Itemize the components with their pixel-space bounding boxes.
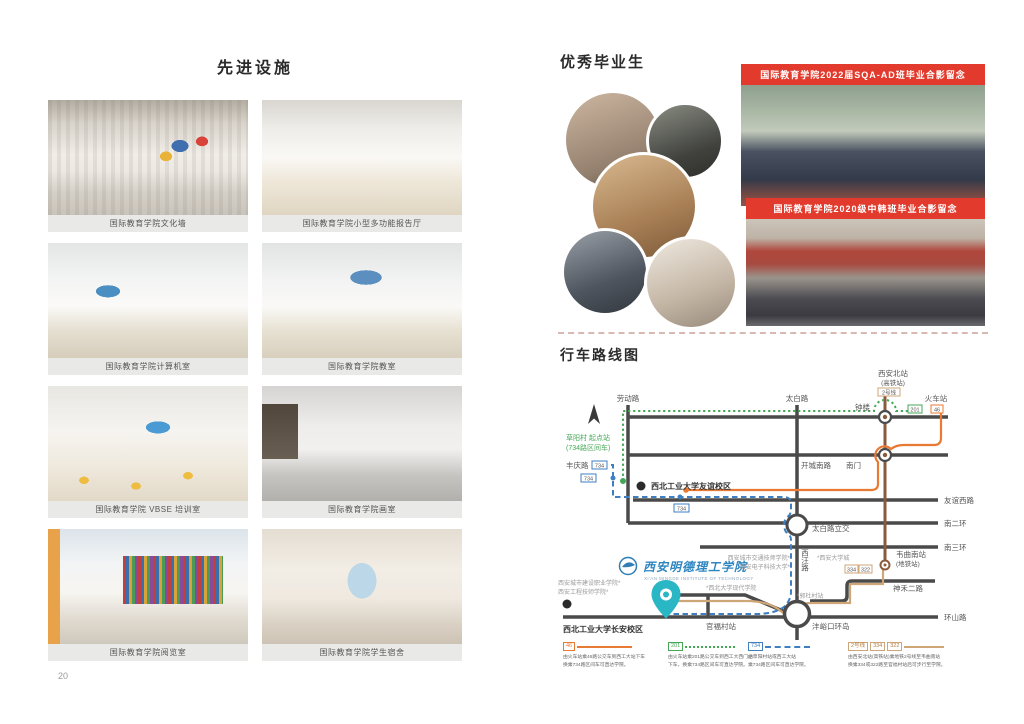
legend-text: 下车，换乘734路区间车可直达学院。: [668, 662, 746, 670]
facility-photo-dormitory: [262, 529, 462, 644]
label-npu-changan-campus: 西北工业大学长安校区: [563, 624, 643, 634]
label-nearby-college-4: 西安城市交通技师学院*: [728, 554, 791, 562]
label-xian-north-sub: (高铁站): [881, 378, 905, 387]
svg-text:734: 734: [677, 507, 686, 513]
facility-card: 国际教育学院教室: [262, 243, 462, 375]
road-network: [563, 405, 948, 640]
label-bell-tower: 钟楼: [855, 402, 870, 412]
facility-photo-classroom: [262, 243, 462, 358]
label-nearby-college-1: 西安城市建设职业学院*: [558, 579, 621, 587]
facility-photo-culture-wall: [48, 100, 248, 215]
svg-text:334: 334: [847, 568, 856, 574]
label-xiwang-road: 西汪路: [800, 549, 809, 572]
label-south-2nd-ring: 南二环: [944, 518, 967, 528]
svg-text:2号线: 2号线: [882, 389, 897, 397]
label-youyi-west-road: 友谊西路: [944, 495, 974, 505]
bus-734-stop-dot-1: [611, 476, 616, 481]
label-nearby-area: *西安大学城: [817, 554, 849, 562]
bus-201-endpoint: [620, 478, 626, 484]
label-weiqu-south-sub: (地铁站): [896, 559, 920, 568]
facility-caption: 国际教育学院小型多功能报告厅: [262, 215, 462, 232]
svg-text:XI'AN MINGDE INSTITUTE OF TECH: XI'AN MINGDE INSTITUTE OF TECHNOLOGY: [644, 576, 754, 581]
facility-caption: 国际教育学院计算机室: [48, 358, 248, 375]
npu-youyi-campus-dot: [637, 482, 646, 491]
facility-caption: 国际教育学院学生宿舍: [262, 644, 462, 661]
label-caoyang-sub: (734路区间车): [566, 443, 610, 452]
legend-text: 换乘734路区间车可直达学院。: [563, 662, 663, 670]
label-caoyang-start: 草阳村 起点站: [566, 433, 610, 442]
legend-text: 由火车站乘46路公交车到西工大站下车: [563, 654, 663, 662]
legend-text: 由草阳村站或西工大站: [748, 654, 833, 662]
legend-text: 由火车站乘201路公交车到西工大西门站: [668, 654, 746, 662]
legend-metro-bus: 2号线 334 322 由西安北站(高铁站)乘地铁2号线至韦曲南站 换乘334或…: [848, 642, 988, 669]
label-xian-north-station: 西安北站: [878, 368, 908, 378]
label-kaicheng-road: 开城南路: [801, 460, 831, 470]
label-nearby-college-3: *西北大学现代学院: [706, 584, 756, 592]
facility-card: 国际教育学院计算机室: [48, 243, 248, 375]
route-map-title: 行车路线图: [560, 345, 640, 365]
graduation-banner-2020: 国际教育学院2020级中韩班毕业合影留念: [746, 198, 985, 219]
page-number: 20: [58, 671, 68, 681]
legend-badge-322: 322: [887, 642, 902, 651]
route-map: 2号线 201 46 734 734 734 334 322: [550, 368, 990, 640]
bus-734-stop-dot-2: [678, 495, 683, 500]
legend-badge-46: 46: [563, 642, 575, 651]
legend-badge-201: 201: [668, 642, 683, 651]
facility-caption: 国际教育学院阅览室: [48, 644, 248, 661]
facility-caption: 国际教育学院教室: [262, 358, 462, 375]
facility-caption: 国际教育学院文化墙: [48, 215, 248, 232]
facility-photo-reading-room: [48, 529, 248, 644]
facility-photo-computer-room: [48, 243, 248, 358]
graduate-portrait-5: [644, 236, 738, 330]
label-south-gate: 南门: [846, 460, 861, 470]
group-photo-2022: [741, 85, 985, 206]
facility-card: 国际教育学院文化墙: [48, 100, 248, 232]
label-south-3rd-ring: 南三环: [944, 542, 967, 552]
facility-card: 国际教育学院 VBSE 培训室: [48, 386, 248, 518]
label-laodong-road: 劳动路: [617, 393, 640, 403]
legend-text: 换乘334或322路至官福村站后可步行至学院。: [848, 662, 988, 670]
legend-line-blue: [765, 646, 810, 648]
facility-caption: 国际教育学院画室: [262, 501, 462, 518]
label-huanshan-road: 环山路: [944, 612, 967, 622]
svg-text:734: 734: [595, 464, 604, 470]
label-train-station: 火车站: [925, 393, 948, 403]
label-shenhe-2nd-road: 神禾二路: [893, 583, 923, 593]
facility-photo-grid: 国际教育学院文化墙 国际教育学院小型多功能报告厅 国际教育学院计算机室 国际教育…: [48, 100, 462, 661]
label-npu-youyi-campus: 西北工业大学友谊校区: [651, 481, 731, 491]
graduate-portrait-4: [561, 228, 649, 316]
legend-bus-46: 46 由火车站乘46路公交车到西工大站下车 换乘734路区间车可直达学院。: [563, 642, 663, 669]
label-nearby-stop: *郭杜村站: [797, 592, 823, 600]
bus-46-route: [688, 412, 941, 490]
npu-changan-campus-dot: [563, 600, 572, 609]
label-taibai-interchange: 太白路立交: [812, 523, 850, 533]
facility-card: 国际教育学院画室: [262, 386, 462, 518]
legend-line-tan: [904, 646, 944, 648]
label-fengyukou-roundabout: 沣峪口环岛: [812, 621, 850, 631]
facility-photo-art-studio: [262, 386, 462, 501]
legend-text: 由西安北站(高铁站)乘地铁2号线至韦曲南站: [848, 654, 988, 662]
facility-card: 国际教育学院学生宿舍: [262, 529, 462, 661]
legend-bus-201: 201 由火车站乘201路公交车到西工大西门站 下车，换乘734路区间车可直达学…: [668, 642, 746, 669]
legend-text: 乘734路区间车可直达学院。: [748, 662, 833, 670]
label-fengqing-road: 丰庆路: [566, 460, 589, 470]
left-page-title: 先进设施: [48, 54, 462, 78]
facility-photo-vbse-room: [48, 386, 248, 501]
svg-text:734: 734: [584, 477, 593, 483]
svg-text:201: 201: [910, 408, 919, 414]
college-location-pin-icon: [652, 580, 681, 619]
legend-badge-734: 734: [748, 642, 763, 651]
graduation-banner-2022: 国际教育学院2022届SQA-AD班毕业合影留念: [741, 64, 985, 85]
facility-photo-lecture-hall: [262, 100, 462, 215]
label-guanfu-stop: 官福村站: [706, 621, 736, 631]
label-nearby-college-2: 西安工程技师学院*: [558, 588, 609, 596]
facility-card: 国际教育学院小型多功能报告厅: [262, 100, 462, 232]
graduates-title: 优秀毕业生: [560, 51, 645, 72]
legend-bus-734: 734 由草阳村站或西工大站 乘734路区间车可直达学院。: [748, 642, 833, 669]
facility-card: 国际教育学院阅览室: [48, 529, 248, 661]
svg-text:322: 322: [861, 568, 870, 574]
facility-caption: 国际教育学院 VBSE 培训室: [48, 501, 248, 518]
dashed-divider: [558, 332, 988, 334]
label-weiqu-south-station: 韦曲南站: [896, 549, 926, 559]
legend-line-orange: [577, 646, 632, 648]
north-arrow-icon: [588, 404, 600, 424]
label-taibai-road: 太白路: [786, 393, 809, 403]
svg-text:46: 46: [934, 408, 940, 414]
bus-201-route: [623, 400, 918, 478]
label-nearby-college-5: 西安电子科技大学*: [740, 563, 791, 571]
legend-badge-334: 334: [870, 642, 885, 651]
svg-text:西安明德理工学院: 西安明德理工学院: [643, 560, 748, 574]
legend-badge-metro: 2号线: [848, 642, 868, 651]
group-photo-2020: [746, 219, 985, 326]
legend-line-green: [685, 646, 735, 648]
